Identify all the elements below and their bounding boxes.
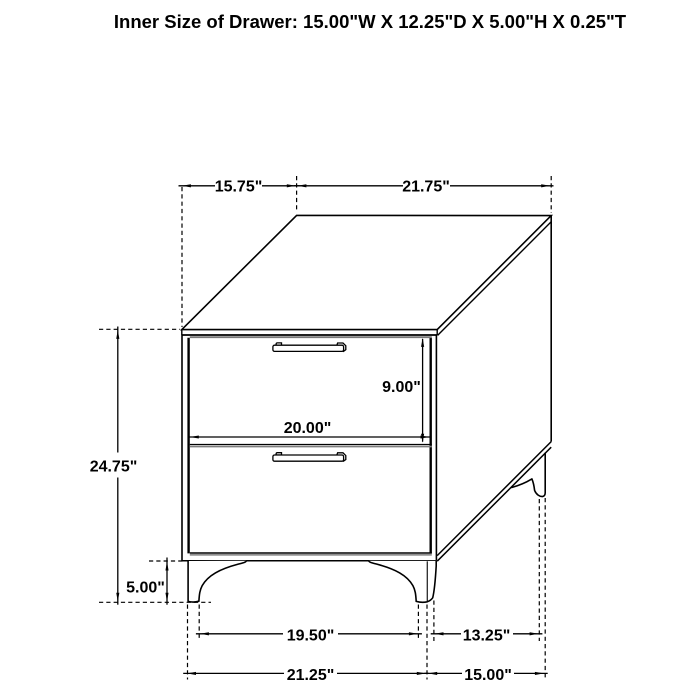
svg-text:19.50": 19.50" [287,628,335,645]
svg-text:13.25": 13.25" [463,628,511,645]
svg-text:20.00": 20.00" [284,420,332,437]
svg-text:Inner Size of Drawer: 15.00"W: Inner Size of Drawer: 15.00"W X 12.25"D … [114,11,627,32]
svg-text:21.75": 21.75" [402,178,450,195]
svg-text:24.75": 24.75" [90,459,138,476]
svg-text:5.00": 5.00" [126,580,165,597]
svg-text:9.00": 9.00" [382,379,421,396]
svg-text:15.00": 15.00" [464,667,512,684]
svg-text:21.25": 21.25" [287,667,335,684]
svg-text:15.75": 15.75" [215,178,263,195]
